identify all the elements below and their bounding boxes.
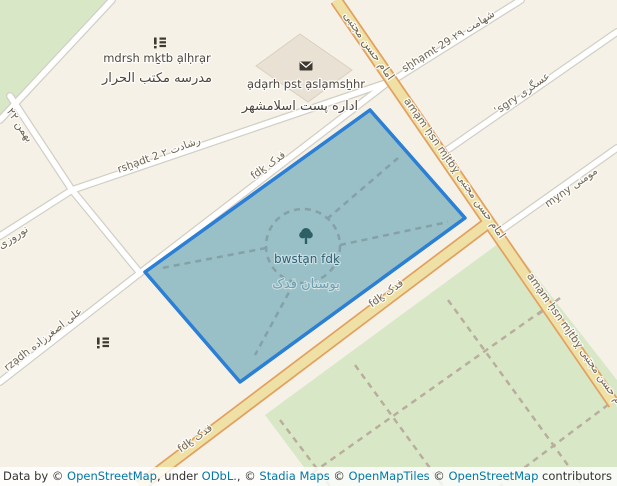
park-name-fa: بوستان فدک [272, 277, 339, 292]
post-office-name-fa: اداره پست اسلامشهر [241, 99, 358, 114]
attribution-text: © [330, 469, 349, 483]
openstreetmap-link[interactable]: OpenStreetMap [67, 469, 157, 483]
openmaptiles-link[interactable]: OpenMapTiles [349, 469, 430, 483]
openstreetmap-link-2[interactable]: OpenStreetMap [448, 469, 538, 483]
odbl-link[interactable]: ODbL. [202, 469, 237, 483]
school-name: mdrsh mḵtb ạlḥrạr [103, 51, 211, 65]
map-container: بهمن ۲۲ نوروزی rsẖạdt 2 رشادت ۲ sẖhạmt 2… [0, 0, 617, 486]
envelope-icon [300, 62, 313, 71]
attribution-bar: Leaflet | Data by © OpenStreetMap, under… [0, 467, 617, 486]
school-name-fa: مدرسه مکتب الحرار [101, 71, 212, 86]
post-office-name: ạdạrh pst ạslạmsẖhr [247, 77, 365, 91]
attribution-text: , under [157, 469, 202, 483]
attribution-text: © [430, 469, 449, 483]
school-icon-2 [97, 338, 109, 349]
attribution-text: contributors [538, 469, 612, 483]
map-canvas[interactable]: بهمن ۲۲ نوروزی rsẖạdt 2 رشادت ۲ sẖhạmt 2… [0, 0, 617, 486]
park-name: bwstạn fdḵ [274, 252, 340, 266]
stadia-maps-link[interactable]: Stadia Maps [259, 469, 329, 483]
school-icon [154, 38, 166, 49]
attribution-text: , © [237, 469, 259, 483]
attribution-text: | Data by © [0, 469, 67, 483]
